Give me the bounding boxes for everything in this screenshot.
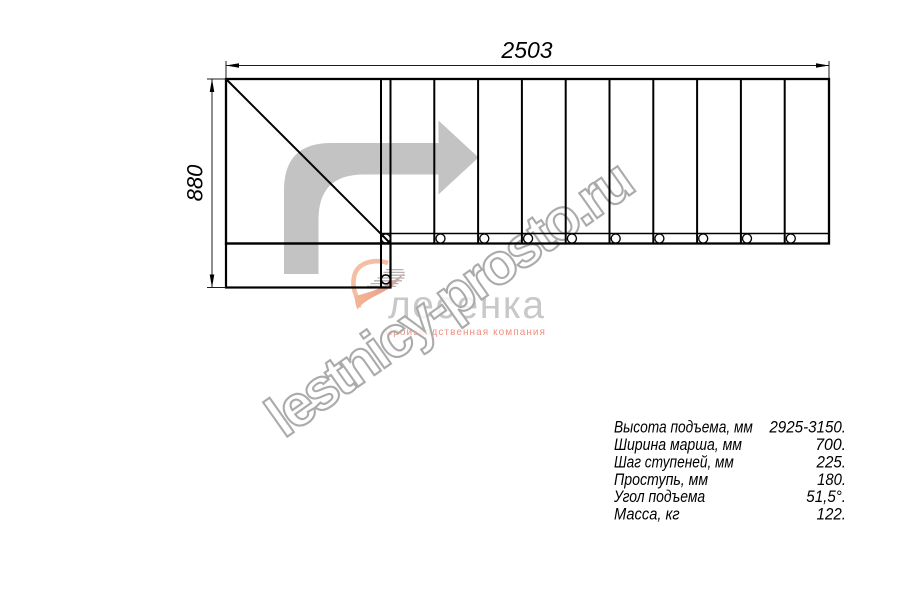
svg-text:Ширина марша, мм: Ширина марша, мм xyxy=(614,436,742,454)
svg-text:700.: 700. xyxy=(815,436,846,454)
svg-text:2503: 2503 xyxy=(500,37,552,63)
svg-text:225.: 225. xyxy=(816,454,846,472)
svg-text:Угол подъема: Угол подъема xyxy=(613,488,705,506)
svg-text:880: 880 xyxy=(183,164,208,201)
svg-text:51,5°.: 51,5°. xyxy=(806,489,846,507)
svg-text:122.: 122. xyxy=(817,506,846,524)
svg-text:Проступь, мм: Проступь, мм xyxy=(614,471,709,489)
svg-text:2925-3150.: 2925-3150. xyxy=(768,419,846,437)
svg-text:Шаг ступеней, мм: Шаг ступеней, мм xyxy=(614,453,734,471)
svg-text:180.: 180. xyxy=(817,471,846,489)
svg-text:Масса, кг: Масса, кг xyxy=(614,506,680,524)
svg-text:Высота подъема, мм: Высота подъема, мм xyxy=(614,418,753,436)
